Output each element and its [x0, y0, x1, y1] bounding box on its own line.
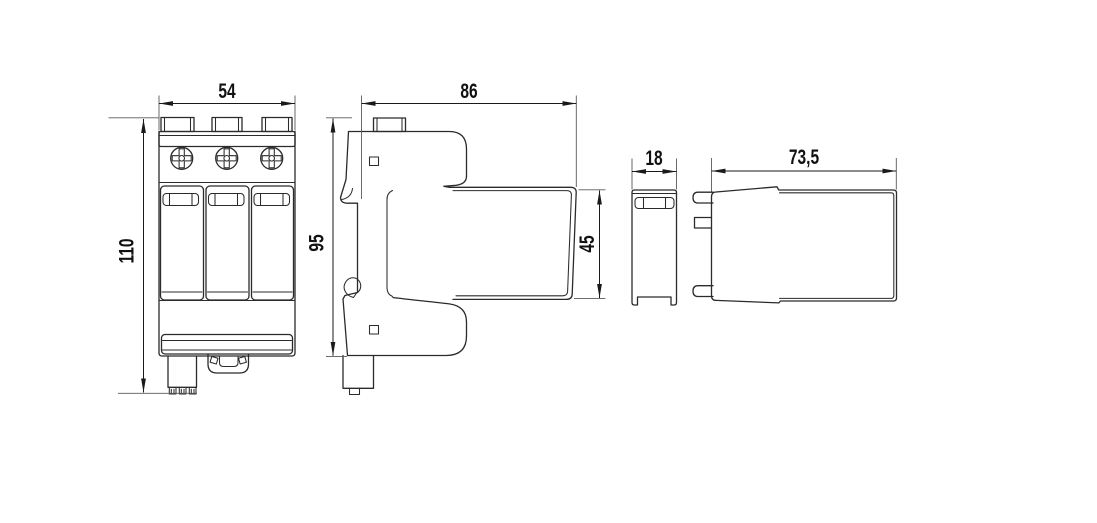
module-windows	[163, 194, 290, 206]
upper-rail-hook	[342, 189, 353, 200]
drawing-canvas: 54 110 86 95 45 18 73,5	[0, 0, 1097, 523]
ext-side-height	[326, 118, 352, 357]
dim-label-cartridge-depth: 73,5	[789, 145, 819, 169]
pin-middle	[695, 218, 712, 229]
dim-label-cartridge-height: 45	[575, 235, 599, 252]
pin-bottom	[693, 286, 713, 297]
contact-pins	[693, 192, 713, 296]
dim-label-side-height: 95	[304, 234, 328, 251]
cartridge-side-outer	[444, 186, 576, 299]
plug-in-modules	[161, 186, 294, 300]
terminal-block-side	[374, 118, 406, 132]
front-view	[159, 118, 295, 395]
rail-groove-line	[387, 191, 393, 297]
dim-label-cartridge-front-width: 18	[645, 146, 662, 170]
dim-label-front-width: 54	[218, 79, 236, 103]
cartridge-body-outline	[712, 187, 897, 303]
dim-label-side-depth: 86	[460, 79, 477, 103]
terminal-blocks-top	[161, 118, 292, 132]
center-mount	[208, 355, 249, 374]
cartridge-side-view	[693, 187, 897, 303]
cartridge-front-view	[632, 190, 677, 305]
cartridge-front-outline	[632, 190, 677, 305]
dimensions: 54 110 86 95 45 18 73,5	[109, 79, 897, 394]
dimension-drawing: 54 110 86 95 45 18 73,5	[0, 0, 1097, 523]
side-view	[341, 118, 577, 395]
marking-square-bottom	[370, 326, 379, 335]
cartridge-side-inner	[453, 191, 571, 296]
cartridge-body-inner	[780, 193, 894, 299]
pin-top	[693, 192, 713, 203]
terminal-bar	[159, 132, 295, 147]
marking-square-top	[370, 157, 379, 166]
screw-right	[261, 147, 283, 169]
ext-side-depth	[362, 96, 577, 200]
cartridge-window	[635, 198, 674, 209]
screw-center	[216, 147, 238, 169]
din-foot	[168, 356, 197, 394]
dim-label-front-height: 110	[114, 238, 138, 263]
bottom-strip	[162, 335, 293, 355]
din-foot-side	[343, 356, 374, 395]
screw-left	[171, 147, 193, 169]
base-outline	[341, 132, 467, 356]
